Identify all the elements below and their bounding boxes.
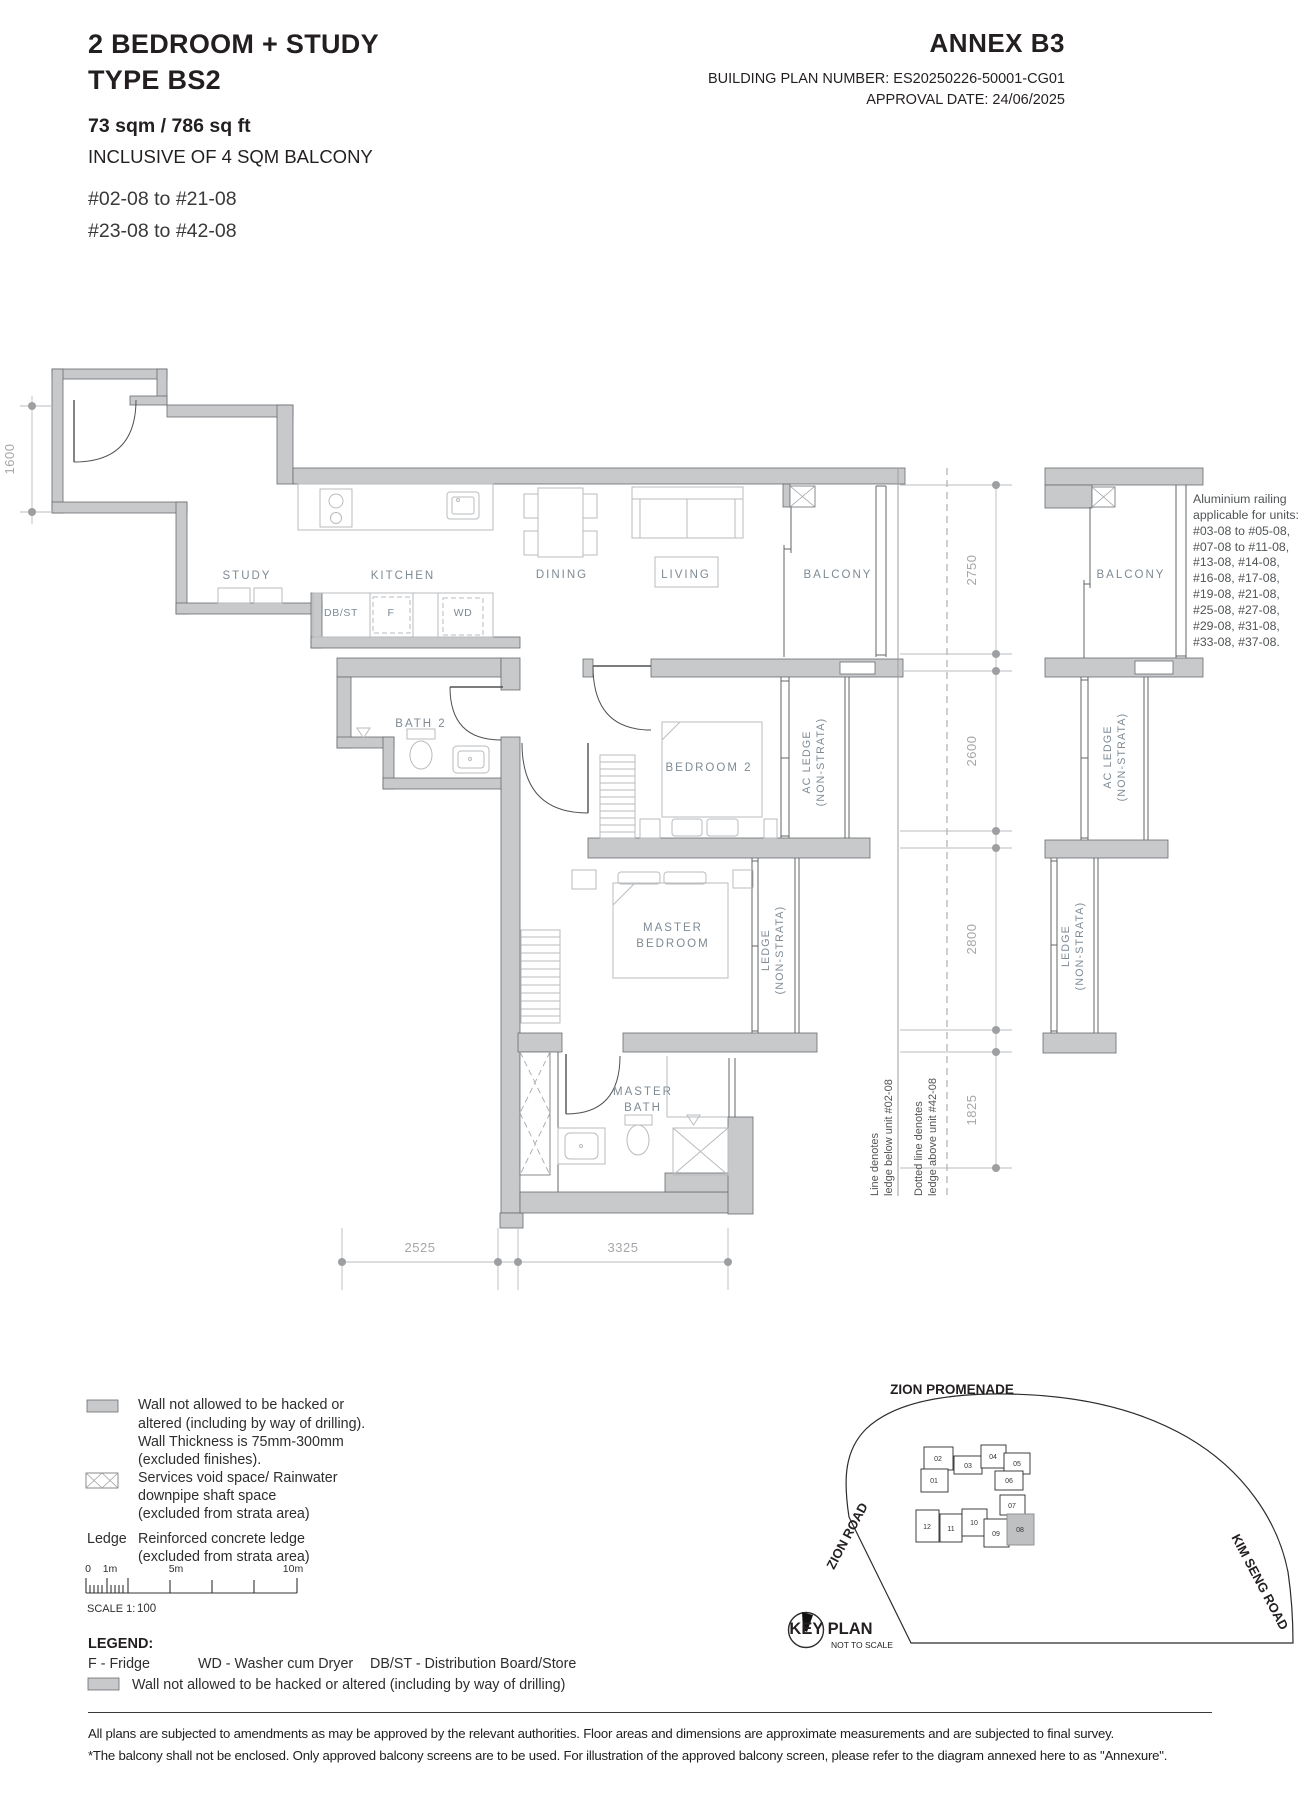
master-bath-label-1: MASTER (613, 1086, 673, 1098)
dimension-right: 2750 2600 2800 1825 Line denotes ledge b… (869, 468, 1012, 1196)
footer-disclaimer: All plans are subjected to amendments as… (88, 1712, 1212, 1767)
svg-text:#33-08, #37-08.: #33-08, #37-08. (1193, 635, 1280, 649)
walls (52, 369, 1203, 1228)
study-label: STUDY (223, 570, 272, 582)
key-plan-title: KEY PLAN (789, 1620, 872, 1638)
living-label: LIVING (661, 569, 711, 581)
svg-text:#13-08, #14-08,: #13-08, #14-08, (1193, 555, 1280, 569)
scale-label: SCALE 1: (87, 1603, 135, 1615)
svg-text:#25-08, #27-08,: #25-08, #27-08, (1193, 603, 1280, 617)
ledge-label-2: (NON-STRATA) (774, 906, 786, 995)
services-void-swatch-icon (86, 1473, 118, 1488)
annex-balcony-label: BALCONY (1097, 569, 1166, 581)
svg-text:Services void space/ Rainwater: Services void space/ Rainwater (138, 1470, 338, 1486)
annex-ac-ledge-label-2: (NON-STRATA) (1116, 713, 1128, 802)
svg-text:Wall Thickness is 75mm-300mm: Wall Thickness is 75mm-300mm (138, 1434, 344, 1450)
svg-text:WD - Washer cum Dryer: WD - Washer cum Dryer (198, 1656, 353, 1672)
key-plan-subtitle: NOT TO SCALE (831, 1640, 893, 1650)
annex-partial-plan-labels: BALCONY AC LEDGE (NON-STRATA) LEDGE (NON… (1060, 569, 1165, 990)
svg-text:Wall not allowed to be hacked: Wall not allowed to be hacked or altered… (132, 1677, 565, 1693)
svg-text:10: 10 (970, 1520, 978, 1527)
svg-text:02: 02 (934, 1456, 942, 1463)
bath2-label: BATH 2 (395, 718, 446, 730)
svg-text:downpipe shaft space: downpipe shaft space (138, 1488, 276, 1504)
scale-bar: 0 1m 5m 10m (85, 1563, 303, 1593)
dbst-label: DB/ST (324, 607, 358, 619)
svg-text:#29-08, #31-08,: #29-08, #31-08, (1193, 619, 1280, 633)
svg-text:#16-08, #17-08,: #16-08, #17-08, (1193, 571, 1280, 585)
floor-plan-page: 2 BEDROOM + STUDY TYPE BS2 73 sqm / 786 … (0, 0, 1298, 1800)
floor-plan-canvas: STUDY KITCHEN DINING LIVING BALCONY BATH… (0, 0, 1298, 1800)
svg-text:09: 09 (992, 1531, 1000, 1538)
dim-1600: 1600 (2, 444, 17, 475)
dim-2525: 2525 (405, 1240, 436, 1255)
svg-text:#19-08, #21-08,: #19-08, #21-08, (1193, 587, 1280, 601)
study-desk (218, 588, 282, 603)
services-void-icon (790, 486, 815, 507)
svg-text:5m: 5m (169, 1563, 184, 1575)
ac-ledge-label-1: AC LEDGE (801, 730, 813, 793)
svg-text:(excluded finishes).: (excluded finishes). (138, 1452, 261, 1468)
bath2-fixtures (357, 728, 489, 773)
annex-ac-ledge-label-1: AC LEDGE (1102, 725, 1114, 788)
svg-text:DB/ST - Distribution Board/Sto: DB/ST - Distribution Board/Store (370, 1656, 576, 1672)
svg-text:Reinforced concrete ledge: Reinforced concrete ledge (138, 1531, 305, 1547)
ledge-below-note-2: ledge below unit #02-08 (883, 1079, 895, 1196)
svg-text:03: 03 (964, 1463, 972, 1470)
road-zion-promenade: ZION PROMENADE (890, 1382, 1014, 1397)
washer-dryer-label: WD (454, 607, 473, 619)
master-bath-label-2: BATH (624, 1102, 662, 1114)
dim-3325: 3325 (608, 1240, 639, 1255)
scale-value: 100 (137, 1603, 156, 1615)
legend-block: Wall not allowed to be hacked or altered… (85, 1397, 365, 1615)
wall-swatch-icon (87, 1400, 118, 1412)
svg-text:05: 05 (1013, 1461, 1021, 1468)
dimension-left: 1600 (2, 396, 54, 524)
footer-line-1: All plans are subjected to amendments as… (88, 1723, 1212, 1745)
svg-text:0: 0 (85, 1563, 91, 1575)
dimension-bottom: 2525 3325 (338, 1228, 732, 1290)
legend-heading: LEGEND: (88, 1636, 153, 1652)
dining-furniture (524, 488, 597, 557)
ledge-above-note-2: ledge above unit #42-08 (927, 1078, 939, 1196)
master-bedroom-label-2: BEDROOM (636, 938, 709, 950)
svg-text:Aluminium railing: Aluminium railing (1193, 492, 1287, 506)
annex-ledge-label-1: LEDGE (1060, 925, 1072, 967)
svg-text:12: 12 (923, 1524, 931, 1531)
svg-text:Wall not allowed to be hacked: Wall not allowed to be hacked or (138, 1397, 344, 1413)
fridge-label: F (387, 607, 394, 619)
bedroom2-label: BEDROOM 2 (665, 762, 752, 774)
svg-text:(excluded from strata area): (excluded from strata area) (138, 1506, 310, 1522)
svg-text:07: 07 (1008, 1503, 1016, 1510)
dining-label: DINING (536, 569, 588, 581)
ledge-label-1: LEDGE (760, 929, 772, 971)
road-zion-road: ZION ROAD (823, 1500, 870, 1571)
balcony-label: BALCONY (804, 569, 873, 581)
footer-line-2: *The balcony shall not be enclosed. Only… (88, 1745, 1212, 1767)
svg-text:#03-08 to #05-08,: #03-08 to #05-08, (1193, 524, 1290, 538)
key-plan-buildings: 02 03 04 05 01 06 07 12 11 10 09 08 (916, 1445, 1034, 1547)
ledge-below-note-1: Line denotes (869, 1133, 881, 1196)
svg-text:06: 06 (1005, 1478, 1013, 1485)
ac-ledge-label-2: (NON-STRATA) (815, 718, 827, 807)
svg-text:altered (including by way of d: altered (including by way of drilling). (138, 1416, 365, 1432)
annex-ledge-label-2: (NON-STRATA) (1074, 902, 1086, 991)
svg-text:#07-08 to #11-08,: #07-08 to #11-08, (1193, 540, 1289, 554)
svg-text:applicable for units:: applicable for units: (1193, 508, 1298, 522)
bedroom2-furniture (600, 722, 777, 838)
ledge-term: Ledge (87, 1531, 127, 1547)
kitchen-label: KITCHEN (371, 570, 435, 582)
dim-2600: 2600 (964, 736, 979, 767)
rainwater-shaft-icon (520, 1052, 550, 1175)
dim-1825: 1825 (964, 1095, 979, 1126)
svg-text:1m: 1m (103, 1563, 118, 1575)
wall-swatch-icon-small (88, 1678, 119, 1690)
dim-2800: 2800 (964, 924, 979, 955)
svg-text:01: 01 (930, 1478, 938, 1485)
svg-text:11: 11 (947, 1526, 954, 1533)
svg-text:04: 04 (989, 1454, 997, 1461)
key-plan: ZION PROMENADE ZION ROAD KIM SENG ROAD 0… (789, 1382, 1294, 1650)
master-bedroom-label-1: MASTER (643, 922, 703, 934)
ledge-above-note-1: Dotted line denotes (913, 1101, 925, 1196)
master-bath-fixtures (558, 1056, 728, 1175)
services-void-icon-annex (1092, 487, 1115, 507)
legend-abbreviations: LEGEND: F - Fridge WD - Washer cum Dryer… (88, 1636, 576, 1693)
dim-2750: 2750 (964, 555, 979, 586)
road-kim-seng: KIM SENG ROAD (1228, 1531, 1291, 1632)
aluminium-railing-note: Aluminium railing applicable for units: … (1193, 492, 1298, 649)
svg-text:10m: 10m (283, 1563, 304, 1575)
svg-text:F - Fridge: F - Fridge (88, 1656, 150, 1672)
svg-text:08: 08 (1016, 1527, 1024, 1534)
